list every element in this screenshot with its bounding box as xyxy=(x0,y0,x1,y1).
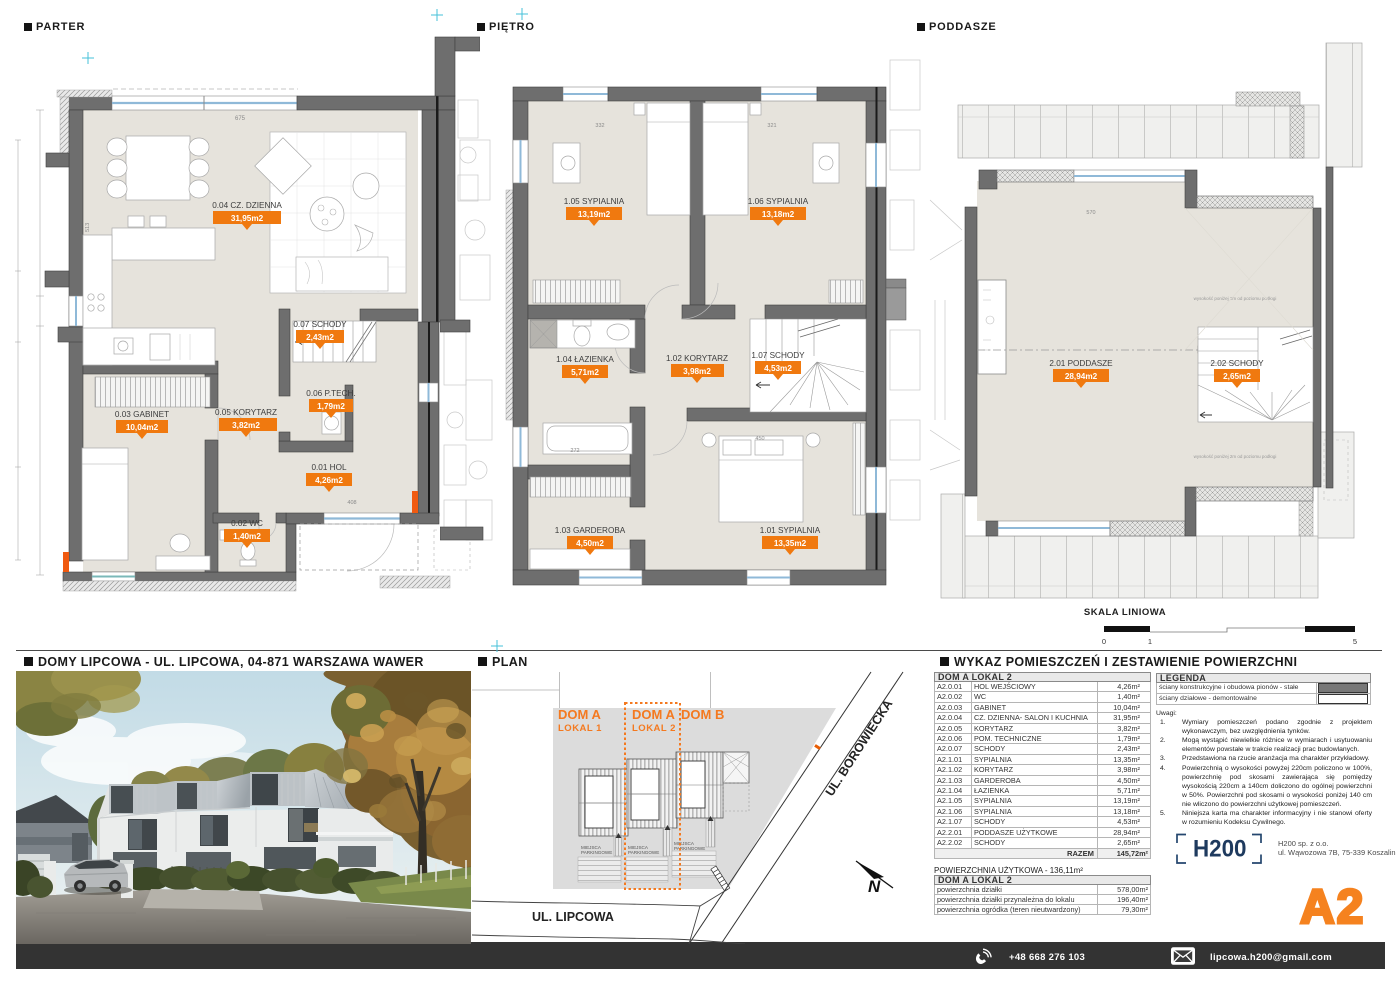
svg-text:2,43m2: 2,43m2 xyxy=(306,333,334,342)
svg-text:3,98m2: 3,98m2 xyxy=(683,367,711,376)
svg-text:wysokość poniżej 2m od poziomu: wysokość poniżej 2m od poziomu podłogi xyxy=(1194,454,1277,459)
svg-text:1,79m2: 1,79m2 xyxy=(317,402,345,411)
svg-text:3,82m2: 3,82m2 xyxy=(232,421,260,430)
svg-text:1.06 SYPIALNIA: 1.06 SYPIALNIA xyxy=(748,197,809,206)
svg-text:LOKAL 2: LOKAL 2 xyxy=(632,723,676,734)
svg-text:450: 450 xyxy=(755,436,764,442)
svg-text:0.02 WC: 0.02 WC xyxy=(231,519,263,528)
svg-text:5: 5 xyxy=(1353,637,1357,646)
svg-text:408: 408 xyxy=(347,500,356,506)
svg-text:13,19m2: 13,19m2 xyxy=(578,210,611,219)
svg-text:PARKINGOWE: PARKINGOWE xyxy=(581,850,612,855)
svg-text:2,65m2: 2,65m2 xyxy=(1223,372,1251,381)
svg-text:PARKINGOWE: PARKINGOWE xyxy=(628,850,659,855)
svg-text:2.02 SCHODY: 2.02 SCHODY xyxy=(1210,359,1264,368)
svg-text:570: 570 xyxy=(1086,210,1095,216)
svg-text:1.07 SCHODY: 1.07 SCHODY xyxy=(751,351,805,360)
svg-text:1,40m2: 1,40m2 xyxy=(233,532,261,541)
svg-text:1.01 SYPIALNIA: 1.01 SYPIALNIA xyxy=(760,526,821,535)
svg-text:1.04 ŁAZIENKA: 1.04 ŁAZIENKA xyxy=(556,355,614,364)
svg-text:UL. BOROWIECKA: UL. BOROWIECKA xyxy=(823,697,896,798)
svg-text:10,04m2: 10,04m2 xyxy=(126,423,159,432)
svg-text:N: N xyxy=(868,877,881,896)
svg-text:0: 0 xyxy=(1102,637,1106,646)
svg-text:4,53m2: 4,53m2 xyxy=(764,364,792,373)
svg-text:0.01 HOL: 0.01 HOL xyxy=(311,463,346,472)
svg-text:SKALA LINIOWA: SKALA LINIOWA xyxy=(1084,607,1166,618)
svg-text:332: 332 xyxy=(595,123,604,129)
svg-text:DOM A: DOM A xyxy=(632,707,675,722)
svg-text:wysokość poniżej 2m od poziomu: wysokość poniżej 2m od poziomu podłogi xyxy=(1194,296,1277,301)
svg-text:1.02 KORYTARZ: 1.02 KORYTARZ xyxy=(666,354,728,363)
svg-text:272: 272 xyxy=(570,448,579,454)
svg-text:LOKAL 1: LOKAL 1 xyxy=(558,723,602,734)
svg-text:13,35m2: 13,35m2 xyxy=(774,539,807,548)
svg-text:2.01 PODDASZE: 2.01 PODDASZE xyxy=(1049,359,1113,368)
svg-text:0.03 GABINET: 0.03 GABINET xyxy=(115,410,169,419)
svg-text:321: 321 xyxy=(767,123,776,129)
svg-text:0.04 CZ. DZIENNA: 0.04 CZ. DZIENNA xyxy=(212,201,282,210)
svg-text:0.05 KORYTARZ: 0.05 KORYTARZ xyxy=(215,408,277,417)
svg-text:PARKINGOWE: PARKINGOWE xyxy=(674,846,705,851)
svg-text:1.05 SYPIALNIA: 1.05 SYPIALNIA xyxy=(564,197,625,206)
svg-text:513: 513 xyxy=(85,223,91,232)
svg-text:4,50m2: 4,50m2 xyxy=(576,539,604,548)
svg-text:675: 675 xyxy=(235,116,246,122)
svg-text:DOM A: DOM A xyxy=(558,707,601,722)
svg-text:UL. LIPCOWA: UL. LIPCOWA xyxy=(532,910,614,924)
svg-text:28,94m2: 28,94m2 xyxy=(1065,372,1098,381)
svg-text:4,26m2: 4,26m2 xyxy=(315,476,343,485)
svg-text:DOM B: DOM B xyxy=(681,707,724,722)
svg-text:1: 1 xyxy=(1148,637,1152,646)
svg-text:5,71m2: 5,71m2 xyxy=(571,368,599,377)
svg-text:13,18m2: 13,18m2 xyxy=(762,210,795,219)
svg-text:H200: H200 xyxy=(1193,836,1247,863)
svg-text:1.03 GARDEROBA: 1.03 GARDEROBA xyxy=(555,526,626,535)
svg-text:31,95m2: 31,95m2 xyxy=(231,214,264,223)
svg-text:0.07 SCHODY: 0.07 SCHODY xyxy=(293,320,347,329)
svg-text:0.06 P.TECH.: 0.06 P.TECH. xyxy=(306,389,355,398)
